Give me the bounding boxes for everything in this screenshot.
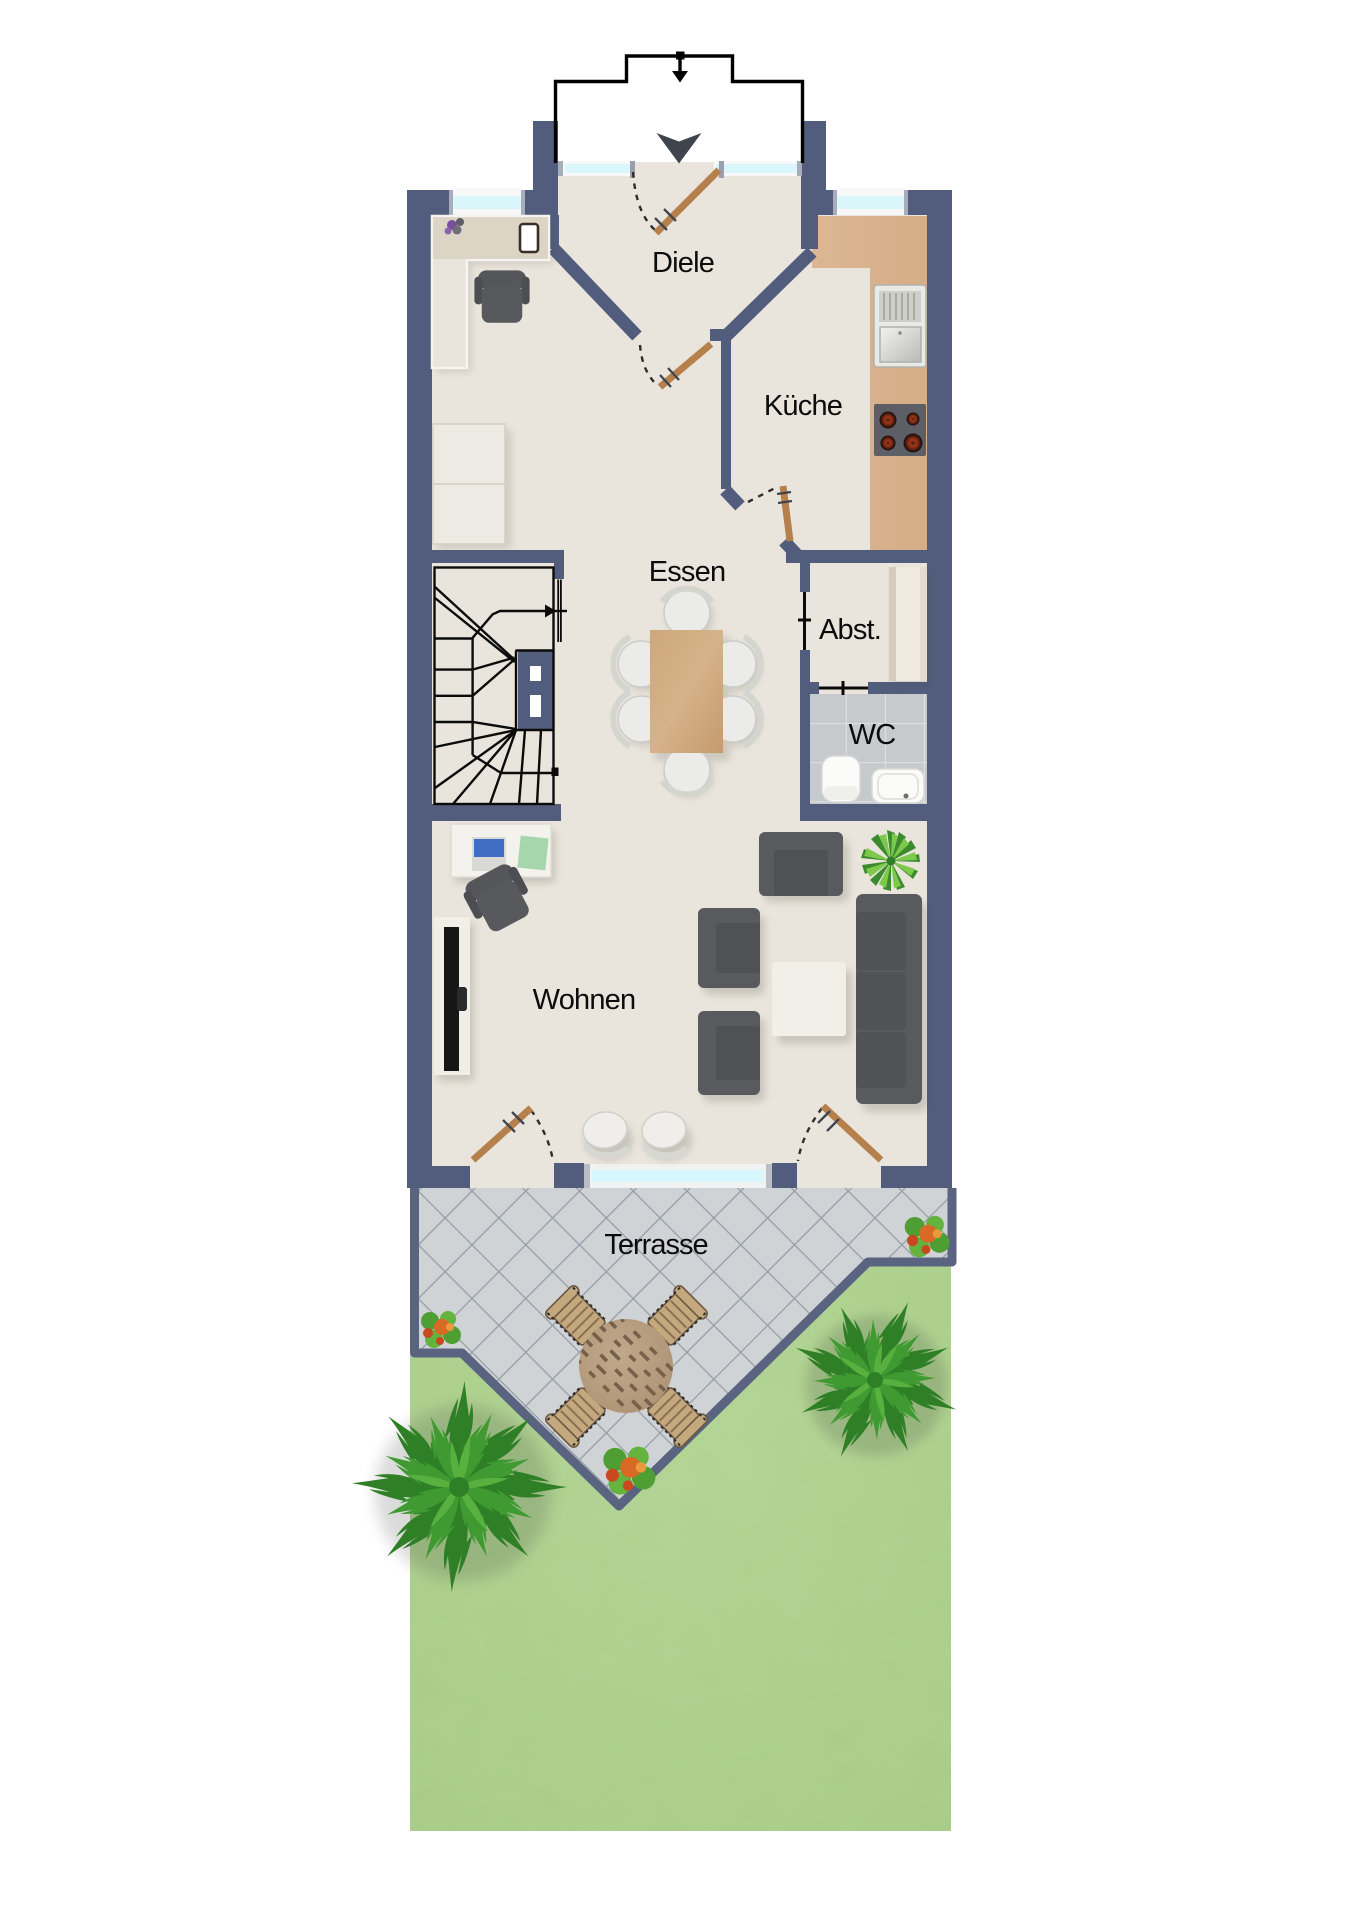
svg-text:Diele: Diele	[652, 247, 714, 279]
svg-text:WC: WC	[849, 719, 896, 751]
svg-text:Terrasse: Terrasse	[604, 1229, 707, 1261]
svg-text:Küche: Küche	[764, 390, 842, 422]
svg-text:Wohnen: Wohnen	[533, 984, 636, 1016]
svg-text:Abst.: Abst.	[819, 614, 881, 646]
svg-text:Essen: Essen	[649, 556, 726, 588]
